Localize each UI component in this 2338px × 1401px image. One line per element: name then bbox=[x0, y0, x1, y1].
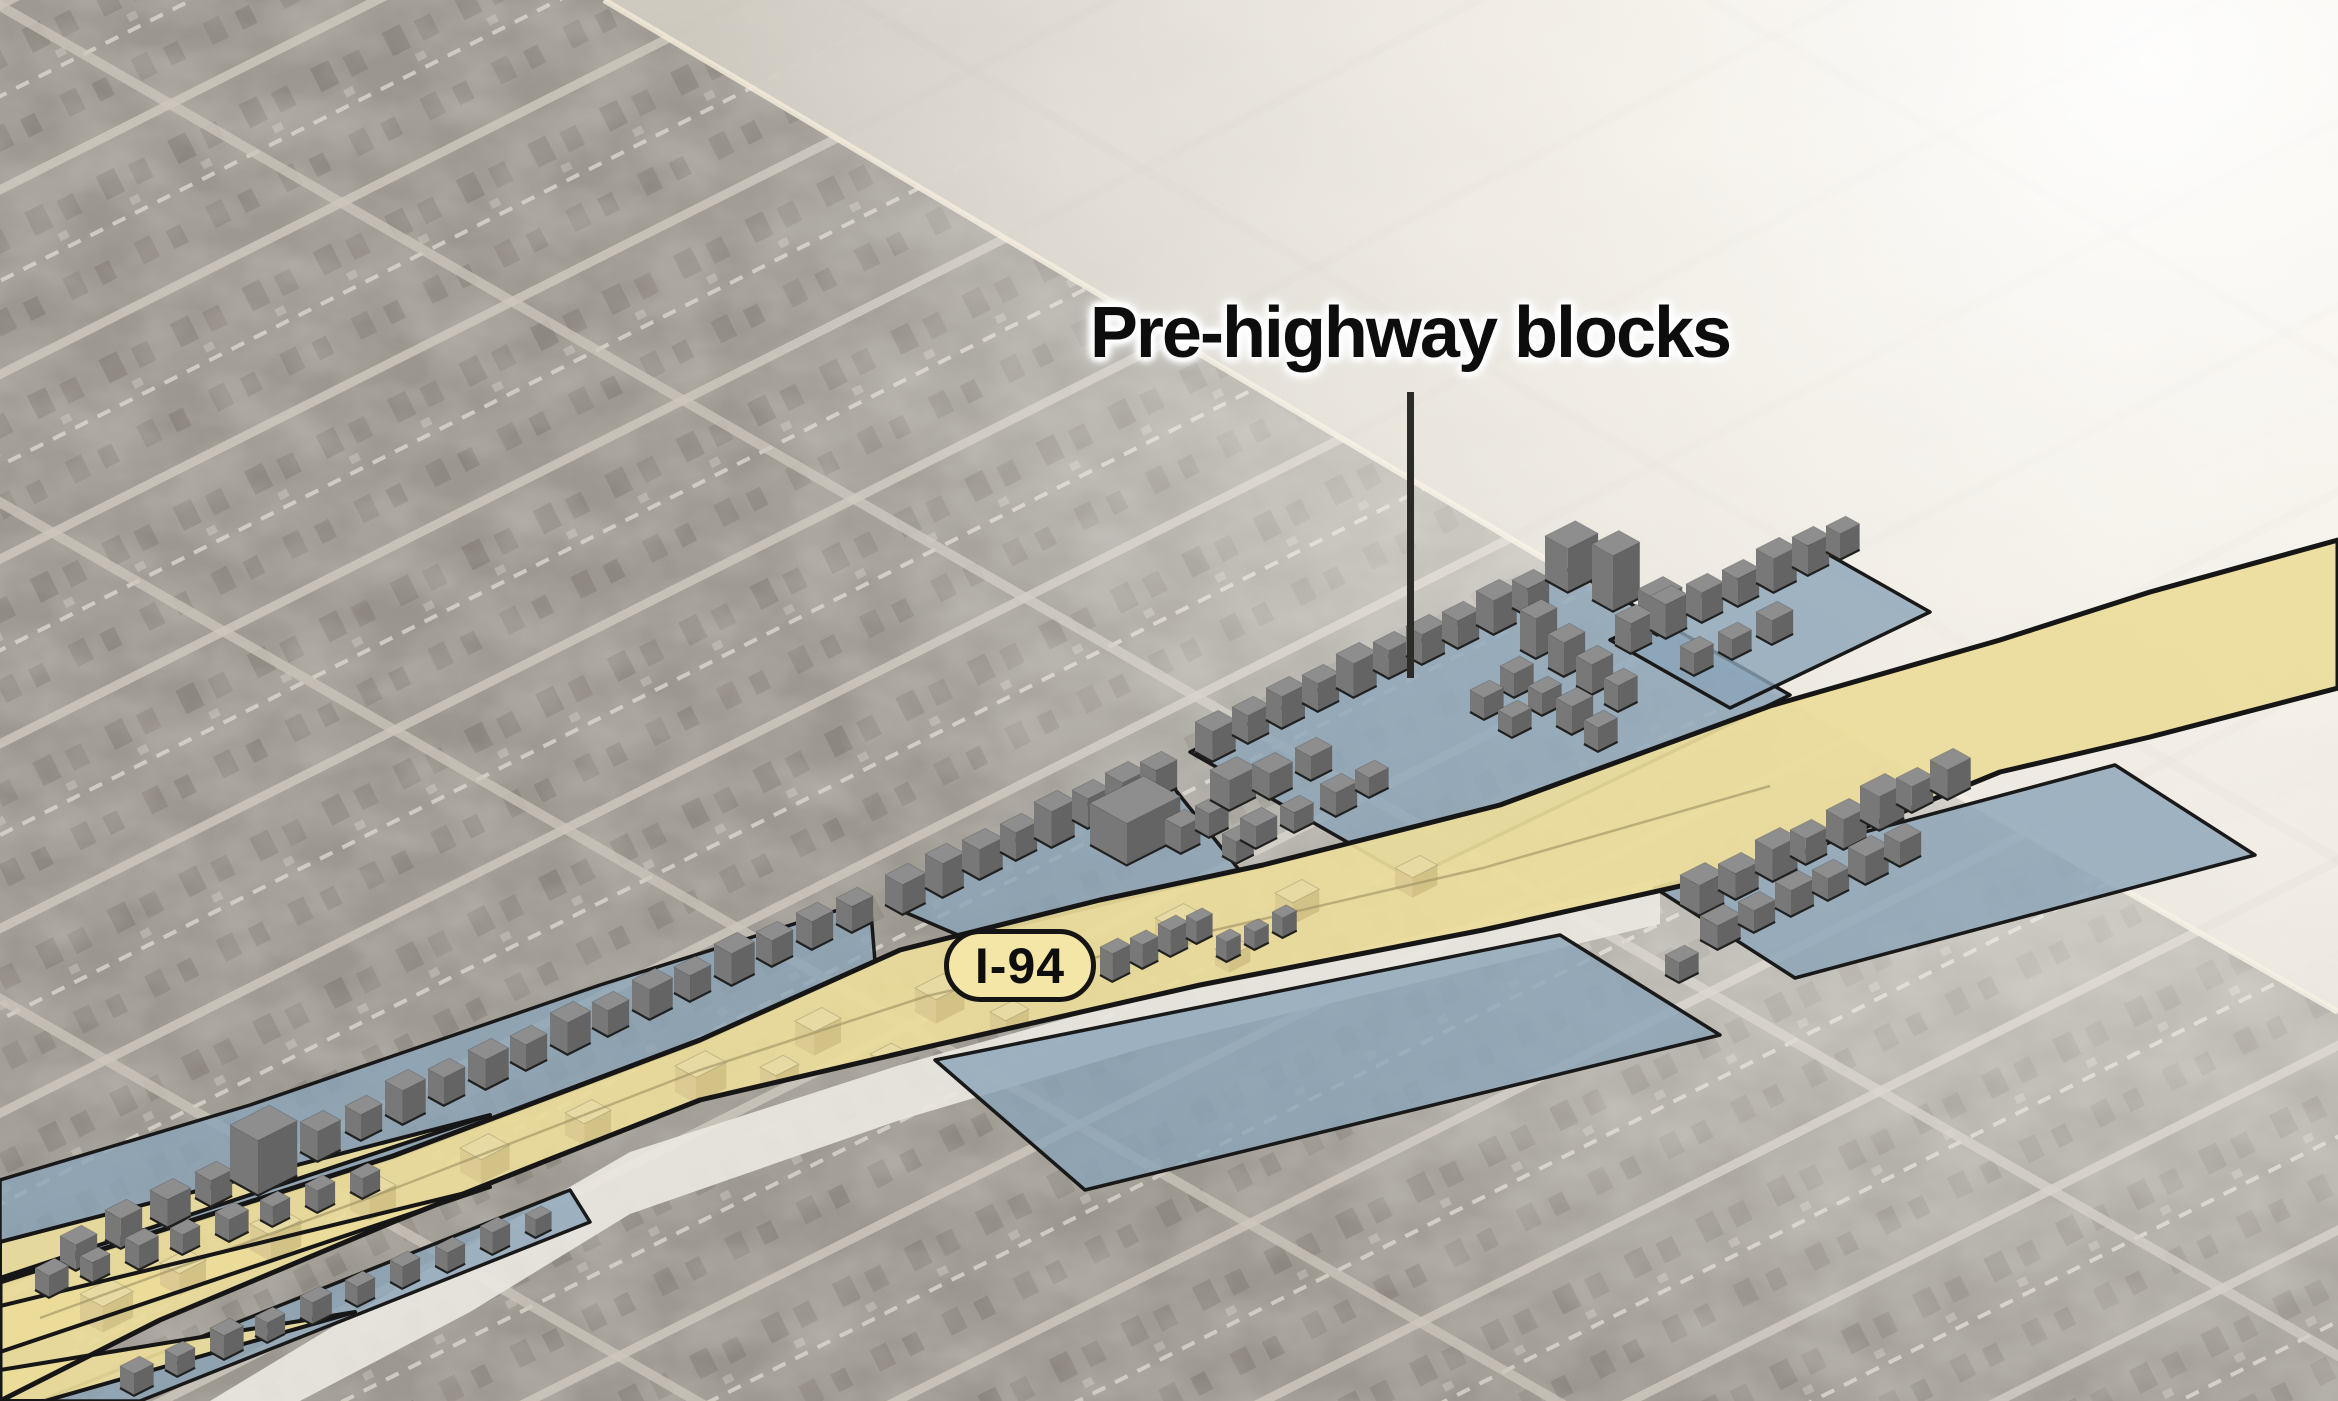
map-figure: Pre-highway blocks I-94 bbox=[0, 0, 2338, 1401]
aerial-scene bbox=[0, 0, 2338, 1401]
highway-badge: I-94 bbox=[944, 929, 1096, 1002]
highway-badge-text: I-94 bbox=[975, 937, 1065, 995]
label-leader-line bbox=[1407, 392, 1414, 678]
annotation-label: Pre-highway blocks bbox=[1060, 292, 1760, 374]
